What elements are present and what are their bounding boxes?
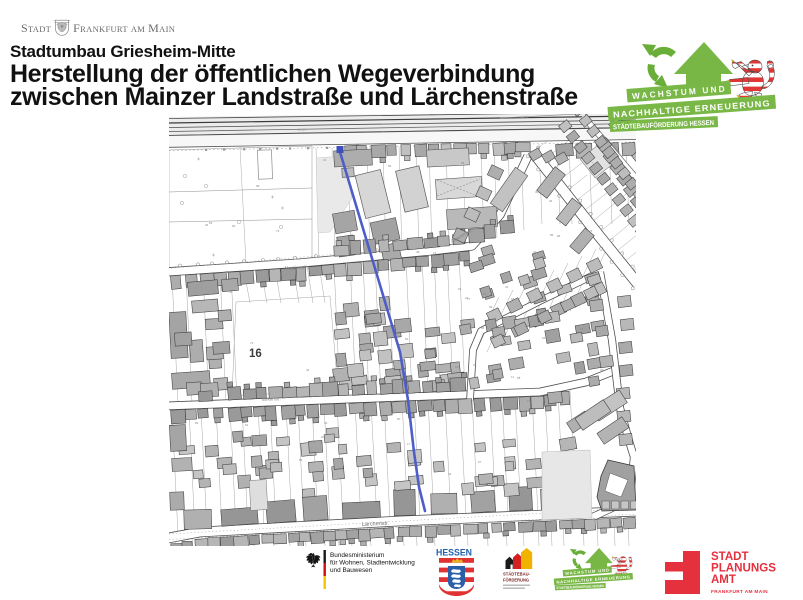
svg-text:48: 48 [483, 292, 487, 296]
svg-text:53: 53 [542, 336, 546, 340]
svg-text:17: 17 [407, 442, 411, 446]
svg-text:74: 74 [589, 229, 593, 233]
svg-text:66: 66 [388, 164, 392, 168]
svg-text:90: 90 [495, 319, 499, 323]
svg-text:16: 16 [249, 348, 262, 360]
svg-text:85: 85 [551, 290, 555, 294]
svg-text:44: 44 [306, 368, 310, 372]
svg-text:86: 86 [550, 233, 554, 237]
svg-text:65: 65 [299, 458, 303, 462]
svg-text:86: 86 [557, 234, 561, 238]
svg-text:86: 86 [481, 326, 485, 330]
svg-text:11: 11 [511, 375, 514, 379]
svg-text:67: 67 [478, 460, 482, 464]
svg-text:30: 30 [535, 190, 539, 194]
svg-text:44: 44 [448, 472, 452, 476]
svg-text:33: 33 [229, 290, 233, 294]
svg-text:73: 73 [580, 327, 584, 331]
svg-text:46: 46 [549, 199, 553, 203]
svg-text:Birkenstr.: Birkenstr. [262, 396, 281, 402]
svg-text:99: 99 [489, 305, 493, 309]
svg-text:68: 68 [511, 297, 515, 301]
svg-text:63: 63 [209, 221, 213, 225]
svg-text:58: 58 [517, 376, 521, 380]
svg-text:2517: 2517 [298, 127, 308, 132]
svg-text:56: 56 [247, 518, 251, 522]
svg-text:90: 90 [232, 224, 236, 228]
svg-text:19: 19 [433, 251, 437, 255]
svg-text:3857: 3857 [520, 115, 530, 120]
svg-text:31: 31 [323, 158, 327, 162]
svg-text:FRANKFURT AM MAIN: FRANKFURT AM MAIN [711, 589, 768, 595]
svg-text:83: 83 [195, 421, 199, 425]
svg-text:56: 56 [548, 520, 552, 524]
svg-text:20: 20 [479, 531, 483, 535]
svg-text:48: 48 [416, 250, 420, 254]
svg-text:und Bauwesen: und Bauwesen [330, 567, 373, 574]
svg-text:31: 31 [505, 285, 509, 289]
svg-text:77: 77 [467, 297, 471, 301]
svg-text:STÄDTEBAU-: STÄDTEBAU- [503, 571, 530, 577]
svg-text:30: 30 [225, 270, 229, 274]
svg-text:40: 40 [324, 421, 328, 425]
svg-text:25: 25 [473, 363, 477, 367]
svg-text:61: 61 [245, 423, 249, 427]
svg-text:42: 42 [533, 250, 537, 254]
svg-text:18: 18 [527, 399, 531, 403]
svg-text:STADT: STADT [711, 551, 748, 563]
svg-text:21: 21 [306, 414, 310, 418]
svg-text:73: 73 [250, 341, 254, 345]
svg-text:58: 58 [341, 382, 345, 386]
svg-text:30: 30 [324, 274, 328, 278]
svg-text:AMT: AMT [711, 574, 736, 586]
svg-text:79: 79 [276, 229, 280, 233]
svg-text:63: 63 [458, 287, 462, 291]
svg-text:HESSEN: HESSEN [436, 548, 472, 559]
svg-text:61: 61 [620, 341, 624, 345]
svg-text:98: 98 [256, 184, 260, 188]
svg-text:Bundesministerium: Bundesministerium [330, 552, 384, 559]
svg-text:54: 54 [455, 365, 459, 369]
svg-text:PLANUNGS: PLANUNGS [711, 563, 776, 575]
svg-text:98: 98 [461, 161, 465, 165]
svg-text:20: 20 [321, 435, 325, 439]
svg-text:FÖRDERUNG: FÖRDERUNG [503, 577, 529, 583]
svg-text:38: 38 [600, 368, 604, 372]
svg-text:43: 43 [355, 239, 359, 243]
svg-text:60: 60 [397, 417, 401, 421]
svg-text:28: 28 [223, 277, 227, 281]
svg-text:85: 85 [507, 216, 511, 220]
svg-text:für Wohnen, Stadtentwicklung: für Wohnen, Stadtentwicklung [330, 560, 415, 567]
svg-text:81: 81 [405, 337, 409, 341]
